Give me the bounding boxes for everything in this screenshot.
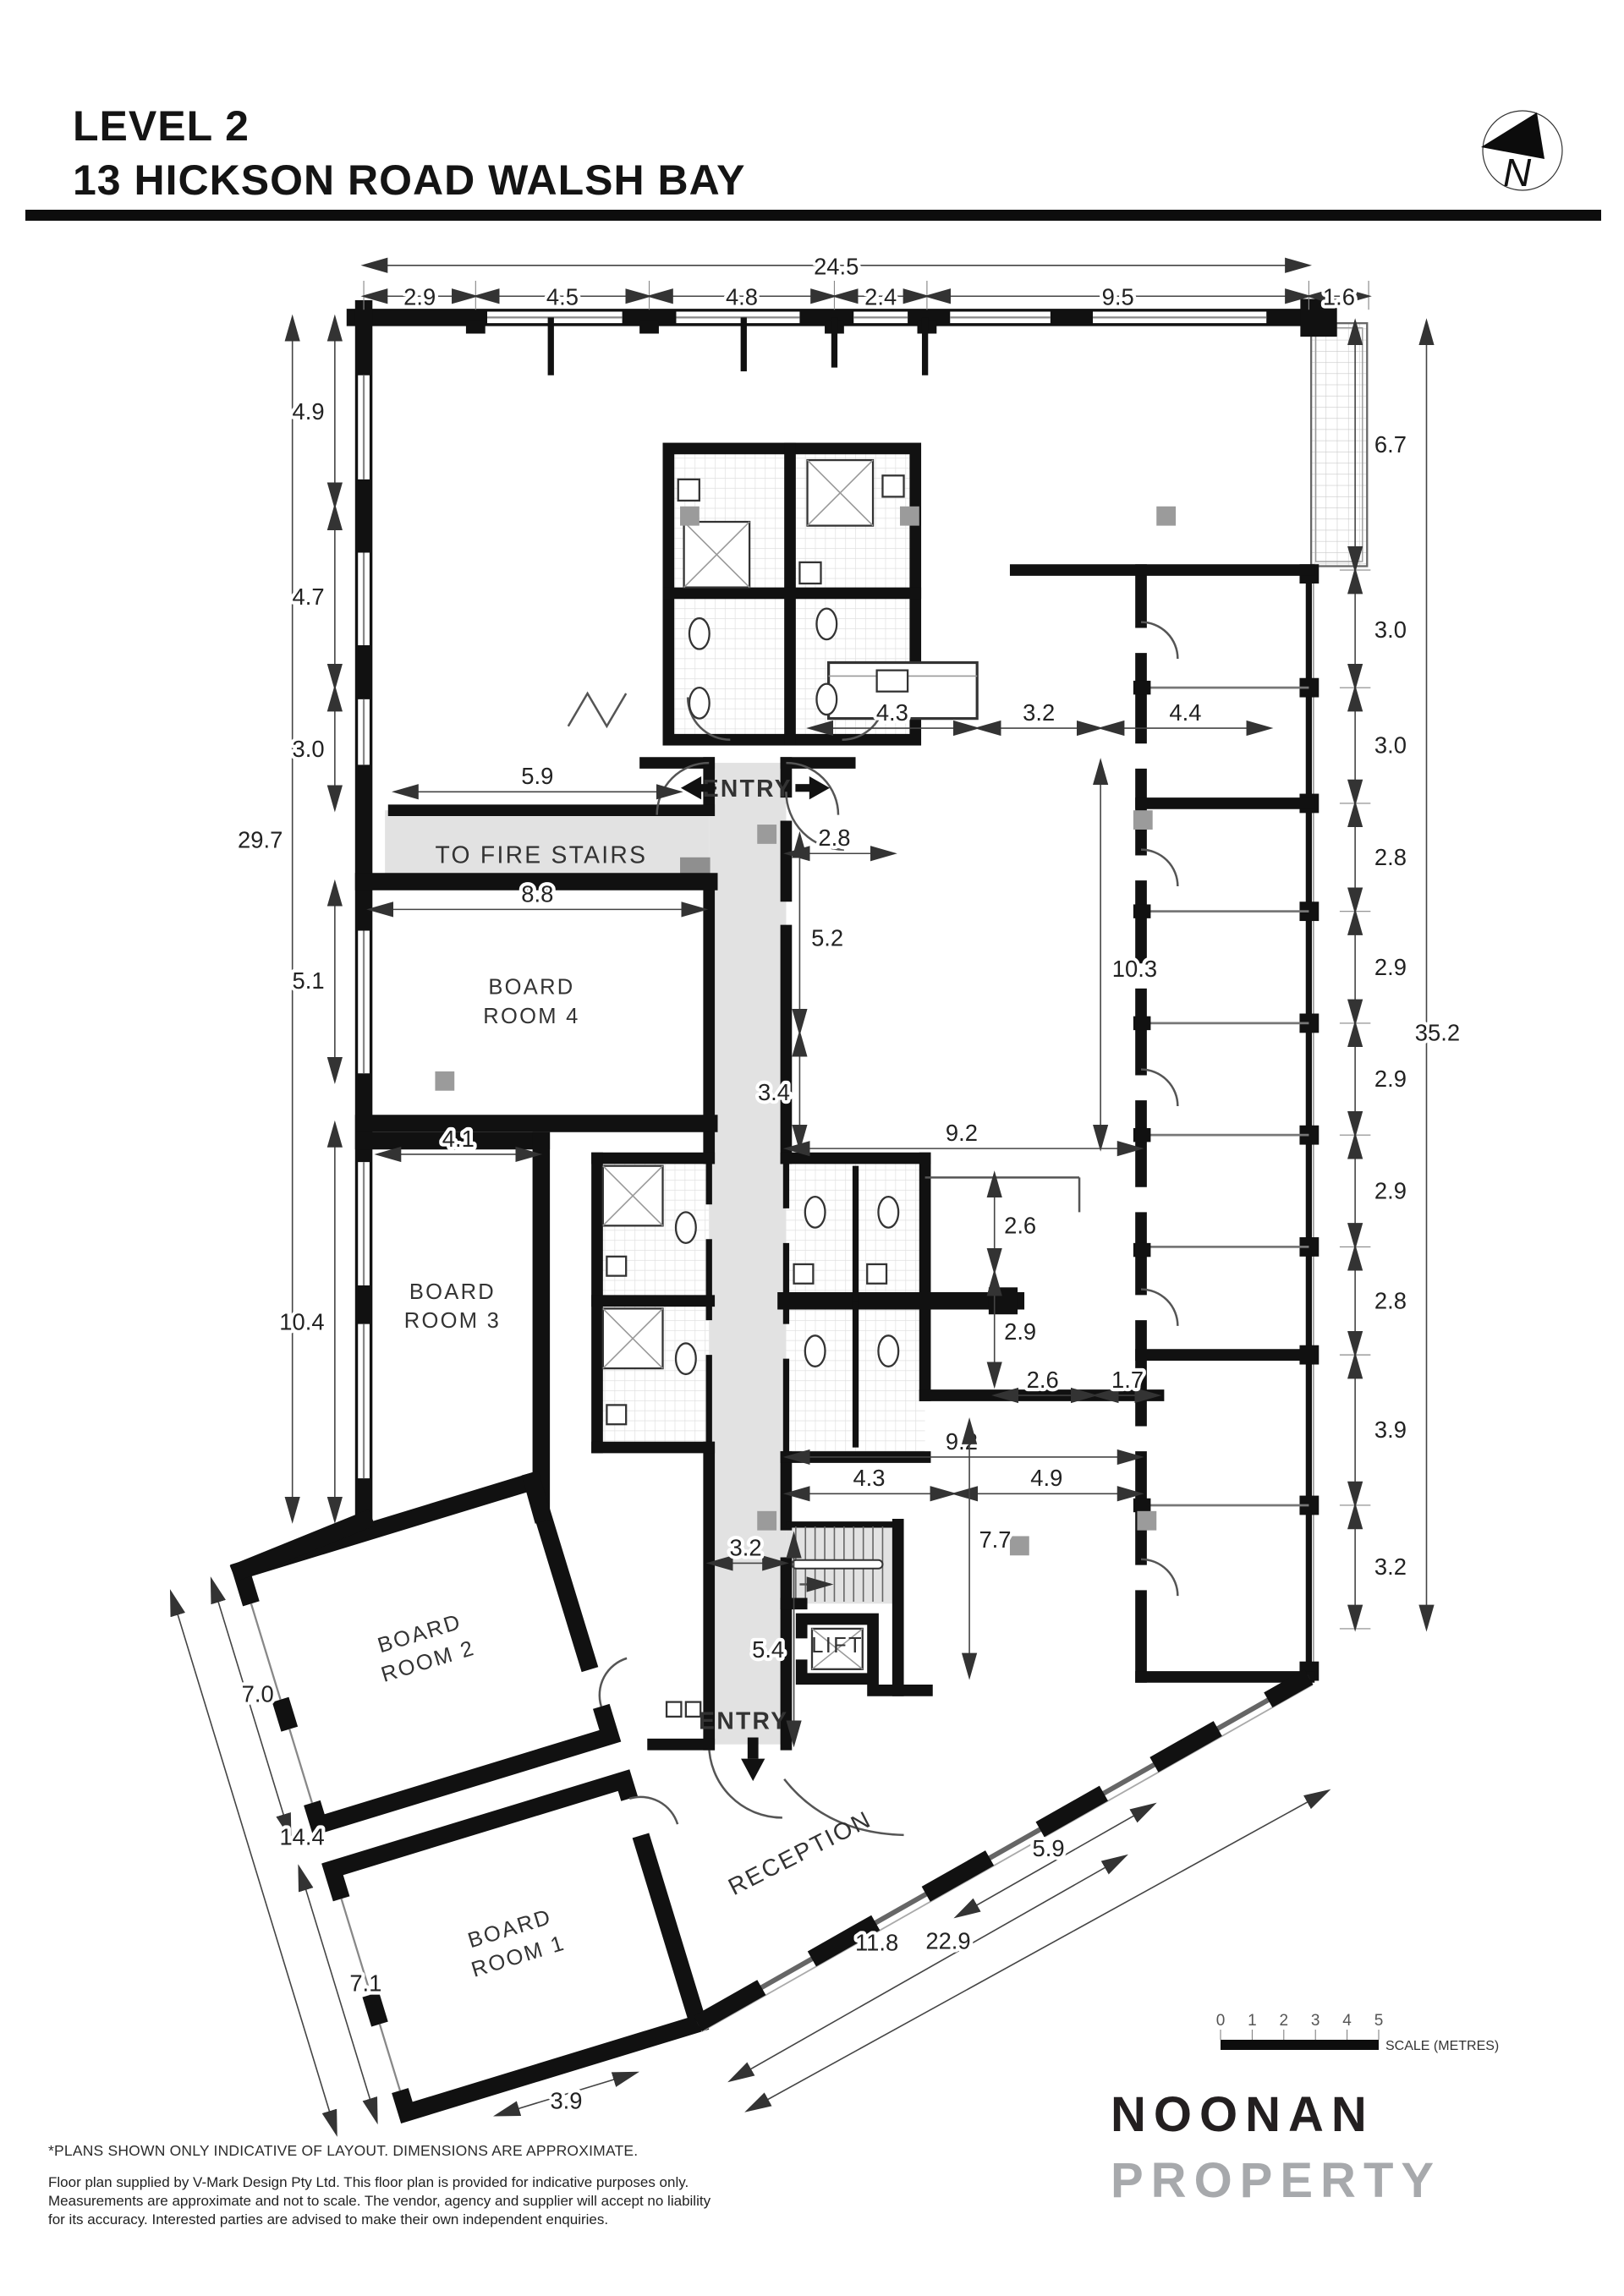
- dim-tilt-overall: 14.4: [279, 1823, 324, 1849]
- dim-top-1: 2.9: [403, 284, 436, 310]
- scale-tick-0: 0: [1216, 2012, 1226, 2030]
- dim-stair-h: 7.7: [979, 1526, 1011, 1553]
- footer-line-1: Floor plan supplied by V-Mark Design Pty…: [48, 2173, 877, 2192]
- wall-join-right: [532, 1482, 540, 1513]
- dim-right-9: 3.9: [1374, 1417, 1407, 1443]
- dim-hall-w: 2.8: [818, 825, 850, 851]
- dim-hall-h: 5.2: [811, 925, 843, 951]
- scale-bar-rect: [1221, 2040, 1379, 2050]
- dim-wc-top: 9.2: [946, 1120, 978, 1146]
- dim-wc-bottom: 9.2: [946, 1428, 978, 1455]
- north-arrow: N: [1459, 85, 1586, 220]
- page-title-level: LEVEL 2: [73, 100, 250, 152]
- scale-tick-5: 5: [1374, 2012, 1384, 2030]
- dim-right-8: 2.8: [1374, 1287, 1407, 1313]
- dim-top-4: 2.4: [864, 284, 897, 310]
- d im-br3: 4.1: [442, 1126, 475, 1152]
- dim-wc-3: 2.6: [1027, 1367, 1059, 1393]
- board-room-3-label-2: ROOM 3: [404, 1309, 501, 1333]
- floor-plan: BOARD ROOM 2 BOARD ROOM 1 24.5 2.9 4.5 4…: [0, 233, 1624, 2177]
- dim-rec-overall: 22.9: [925, 1927, 970, 1954]
- dim-left-overall: 29.7: [238, 826, 283, 852]
- tilted-board-rooms: BOARD ROOM 2 BOARD ROOM 1: [241, 1470, 735, 2112]
- dim-left-3: 3.0: [292, 736, 324, 762]
- dim-right-7: 2.9: [1374, 1177, 1407, 1203]
- dim-br4: 8.8: [521, 880, 553, 907]
- dim-balcony: 1.6: [1323, 284, 1355, 310]
- dim-right-4: 2.8: [1374, 844, 1407, 870]
- dim-left-2: 4.7: [292, 584, 324, 610]
- north-label: N: [1503, 151, 1532, 195]
- dim-bottom-w: 3.9: [550, 2088, 582, 2114]
- dim-right-2: 3.0: [1374, 616, 1407, 643]
- dim-mid-3: 4.4: [1169, 699, 1201, 726]
- dim-right-10: 3.2: [1374, 1553, 1407, 1580]
- dim-hall-h2: 3.4: [758, 1079, 790, 1105]
- scale-tick-2: 2: [1280, 2012, 1289, 2030]
- dim-wc-5: 4.3: [853, 1465, 885, 1491]
- dim-right-3: 3.0: [1374, 732, 1407, 759]
- dim-right-5: 2.9: [1374, 954, 1407, 980]
- board-room-4-label-1: BOARD: [488, 976, 574, 1000]
- dim-mid-2: 3.2: [1023, 699, 1055, 726]
- dim-wc-1: 2.6: [1004, 1212, 1036, 1238]
- board-room-4-label-2: ROOM 4: [483, 1005, 579, 1028]
- entry-top-label: ENTRY: [703, 775, 793, 802]
- dim-top-overall: 24.5: [814, 253, 859, 279]
- scale-tick-1: 1: [1248, 2012, 1257, 2030]
- dim-left-1: 4.9: [292, 398, 324, 425]
- dim-diag: 5.9: [1033, 1835, 1065, 1861]
- dim-tilt-2: 7.1: [349, 1970, 381, 1997]
- footer-line-2: Measurements are approximate and not to …: [48, 2192, 877, 2211]
- dim-stair-w: 3.2: [730, 1534, 762, 1560]
- board-room-3-label-1: BOARD: [409, 1280, 496, 1304]
- scale-tick-4: 4: [1342, 2012, 1352, 2030]
- dim-rec-1: 11.8: [855, 1930, 898, 1956]
- reception-label: RECEPTION: [724, 1805, 876, 1900]
- dim-wc-2: 2.9: [1004, 1318, 1036, 1345]
- to-fire-stairs-label: TO FIRE STAIRS: [435, 841, 647, 869]
- dim-open-h: 10.3: [1112, 956, 1157, 982]
- dim-top-2: 4.5: [546, 284, 579, 310]
- logo-property: PROPERTY: [1111, 2155, 1441, 2207]
- dim-right-overall: 35.2: [1415, 1019, 1460, 1045]
- lift-label: LIFT: [811, 1634, 864, 1658]
- dim-top-3: 4.8: [726, 284, 758, 310]
- dim-fire: 5.9: [521, 763, 553, 789]
- dim-left-5: 10.4: [279, 1308, 324, 1334]
- dim-wc-4: 1.7: [1111, 1367, 1144, 1393]
- dim-tilt-1: 7.0: [242, 1681, 274, 1707]
- dim-lobby-h: 5.4: [752, 1636, 784, 1663]
- footer-line-3: for its accuracy. Interested parties are…: [48, 2211, 877, 2229]
- dim-mid-1: 4.3: [876, 699, 908, 726]
- scale-tick-3: 3: [1311, 2012, 1320, 2030]
- dim-wc-6: 4.9: [1030, 1465, 1062, 1491]
- balcony: [1311, 323, 1367, 566]
- page: { "header": {"title_line1": "LEVEL 2", "…: [0, 0, 1624, 2296]
- dim-right-6: 2.9: [1374, 1066, 1407, 1092]
- logo-noonan: NOONAN: [1111, 2089, 1374, 2141]
- dim-right-1: 6.7: [1374, 431, 1407, 458]
- dim-left-4: 5.1: [292, 967, 324, 994]
- page-title-address: 13 HICKSON ROAD WALSH BAY: [73, 154, 745, 206]
- scale-bar-label: SCALE (METRES): [1385, 2039, 1499, 2053]
- title-divider: [25, 210, 1601, 221]
- footer-note: *PLANS SHOWN ONLY INDICATIVE OF LAYOUT. …: [48, 2142, 638, 2160]
- entry-bottom-label: ENTRY: [699, 1707, 788, 1734]
- dim-top-5: 9.5: [1102, 284, 1134, 310]
